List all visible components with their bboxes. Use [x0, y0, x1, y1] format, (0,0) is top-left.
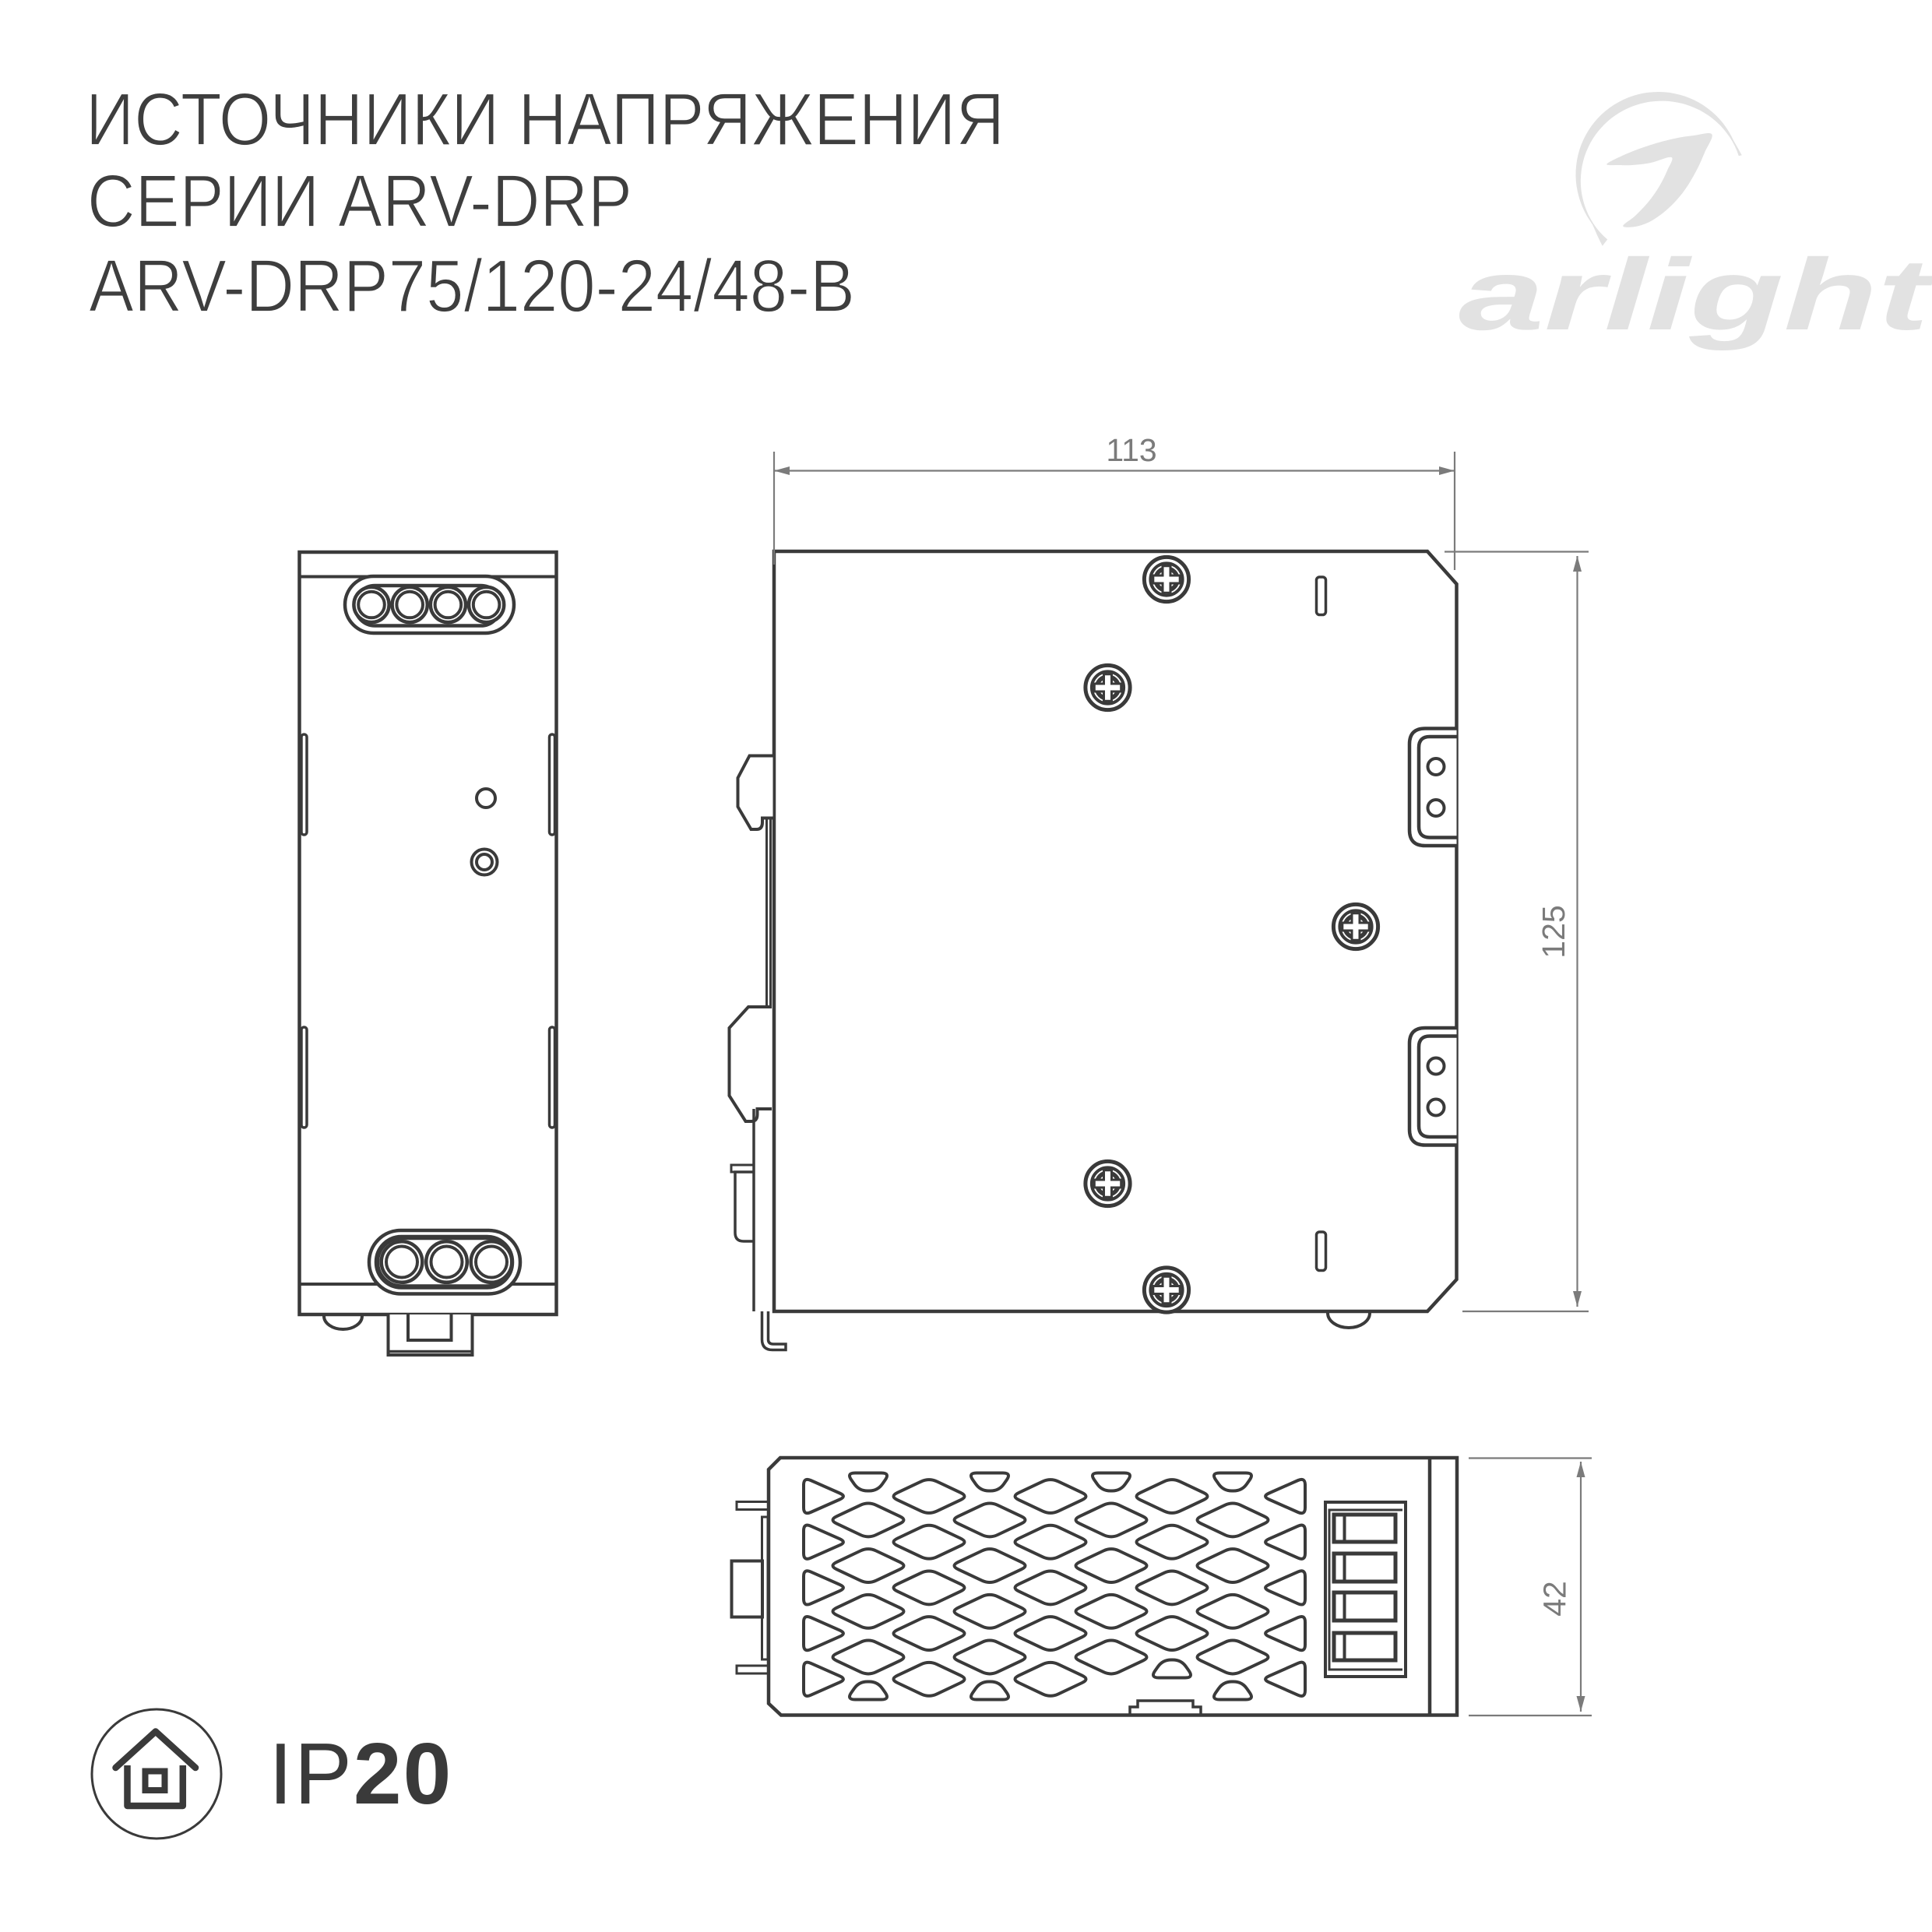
svg-text:СЕРИИ ARV-DRP: СЕРИИ ARV-DRP — [87, 160, 632, 243]
svg-text:113: 113 — [1106, 432, 1156, 468]
svg-text:125: 125 — [1536, 905, 1571, 958]
svg-text:ARV-DRP75/120-24/48-B: ARV-DRP75/120-24/48-B — [89, 245, 855, 328]
svg-text:ИСТОЧНИКИ НАПРЯЖЕНИЯ: ИСТОЧНИКИ НАПРЯЖЕНИЯ — [86, 78, 1005, 161]
svg-text:42: 42 — [1537, 1581, 1573, 1617]
svg-text:IP20: IP20 — [269, 1726, 452, 1822]
svg-text:arlight: arlight — [1459, 238, 1932, 351]
